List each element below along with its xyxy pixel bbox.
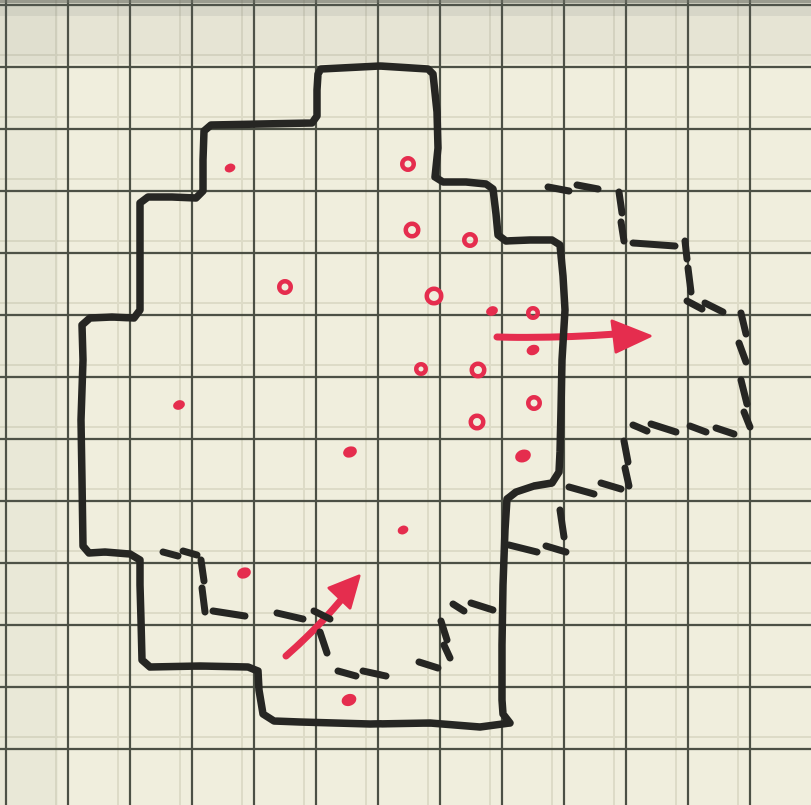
ink-dash (685, 241, 687, 259)
arrow-east-shaft (497, 334, 616, 337)
ink-dash (213, 611, 245, 616)
ink-dash (688, 268, 691, 292)
ink-dash (183, 551, 197, 555)
ink-dash (338, 671, 356, 676)
ink-dash (625, 468, 629, 486)
scan-shade-left (0, 0, 58, 805)
ink-dash (577, 185, 598, 189)
sketch-canvas (0, 0, 811, 805)
ink-dash (548, 187, 569, 191)
ink-dash (619, 192, 622, 213)
ink-dash (202, 588, 205, 612)
ink-dash (560, 510, 564, 537)
ink-dash (633, 243, 675, 246)
scanned-sketch-page (0, 0, 811, 805)
paper-background (0, 0, 811, 805)
ink-dash (624, 441, 628, 462)
ink-dash (201, 560, 204, 581)
ink-dash (363, 671, 386, 676)
ink-dash (621, 222, 624, 241)
ink-dash (163, 552, 178, 556)
ink-dash (741, 313, 746, 334)
